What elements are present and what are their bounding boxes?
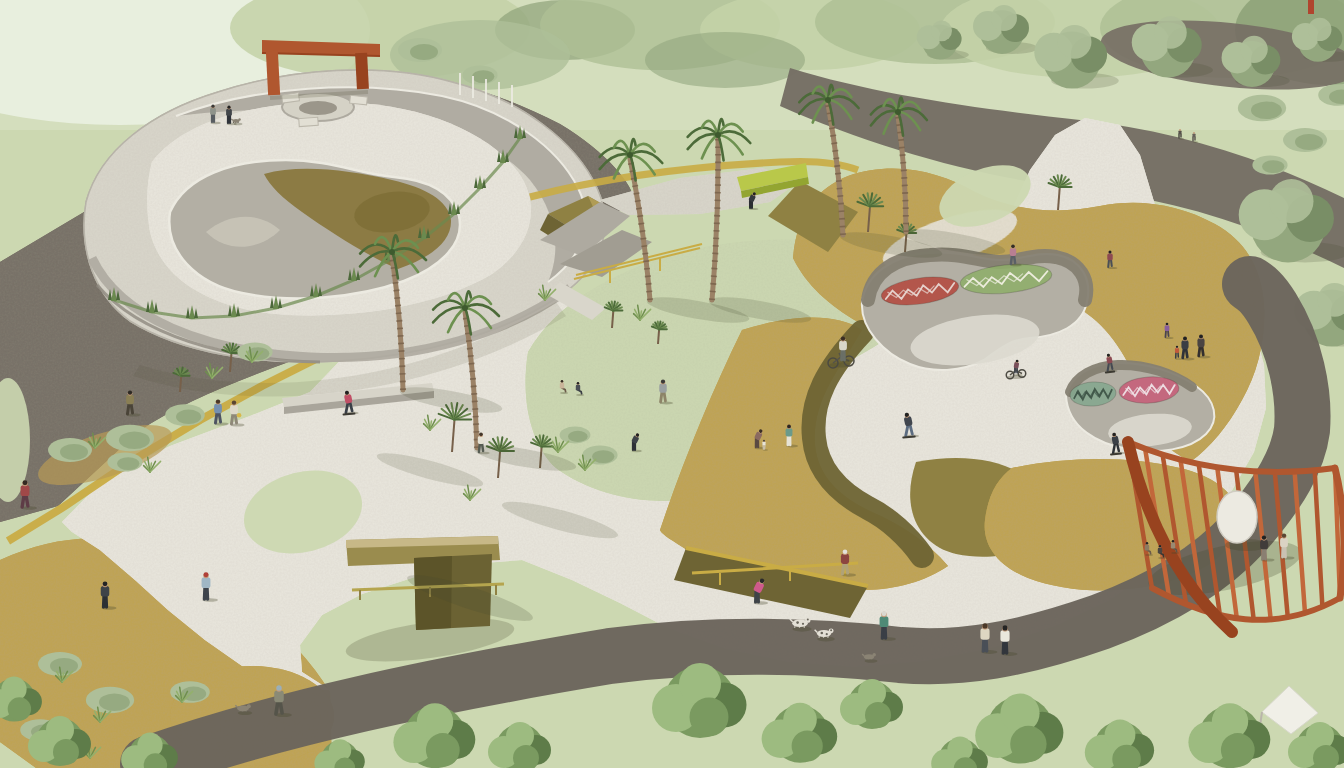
person-torso bbox=[576, 385, 580, 391]
person-shadow bbox=[1158, 557, 1166, 559]
tree-canopy bbox=[1058, 25, 1092, 59]
cordyline-trunk bbox=[612, 311, 613, 328]
person-shadow bbox=[1179, 138, 1184, 139]
person-hair bbox=[227, 106, 230, 109]
bike-shadow bbox=[829, 363, 853, 368]
person-torso bbox=[226, 109, 232, 116]
bush-shade bbox=[117, 457, 139, 470]
skateboard bbox=[344, 414, 355, 415]
person-hair bbox=[1108, 251, 1111, 254]
person-leg bbox=[1199, 346, 1200, 356]
person-hair bbox=[1172, 540, 1174, 542]
person-leg bbox=[479, 443, 480, 452]
palm-crown bbox=[389, 249, 395, 255]
dog-ear bbox=[830, 629, 832, 631]
dog-shadow bbox=[817, 637, 835, 642]
person-torso bbox=[560, 383, 564, 389]
person-torso bbox=[21, 485, 30, 496]
bush-shade bbox=[119, 431, 150, 449]
person-leg bbox=[1186, 348, 1187, 357]
person-leg bbox=[280, 701, 282, 713]
person-torso bbox=[1178, 130, 1181, 134]
portal-leg-right bbox=[355, 53, 369, 90]
person-torso bbox=[762, 441, 765, 445]
person-leg bbox=[231, 413, 233, 424]
person-leg bbox=[127, 403, 129, 414]
tree-canopy bbox=[991, 5, 1017, 31]
bush-tree bbox=[462, 65, 497, 84]
dog-head bbox=[247, 704, 251, 708]
person-torso bbox=[786, 428, 793, 436]
person-hair bbox=[211, 105, 214, 108]
person-cap bbox=[843, 549, 848, 554]
person-torso bbox=[1145, 545, 1149, 551]
palm-crown bbox=[627, 152, 633, 158]
palm-crown bbox=[895, 109, 901, 115]
person-leg bbox=[1165, 331, 1166, 337]
painting-root bbox=[0, 0, 1344, 768]
person-hair bbox=[479, 433, 483, 437]
person-head bbox=[1193, 132, 1195, 134]
person-leg bbox=[219, 412, 221, 422]
tree-canopy bbox=[1240, 36, 1267, 63]
person-hair bbox=[787, 425, 791, 429]
dog-shadow bbox=[238, 711, 252, 715]
person-torso bbox=[1260, 540, 1268, 550]
dog-spot bbox=[796, 621, 799, 624]
tree-canopy bbox=[865, 702, 891, 728]
palm-crown bbox=[825, 97, 831, 103]
person-leg bbox=[1014, 255, 1015, 263]
person-torso bbox=[880, 616, 889, 627]
person-hair bbox=[841, 336, 845, 340]
person-hair bbox=[1011, 245, 1015, 249]
bush-tree bbox=[1238, 95, 1286, 121]
person-shadow bbox=[1014, 374, 1022, 376]
person-torso bbox=[478, 436, 484, 444]
tree-canopy bbox=[1154, 16, 1187, 49]
skatepark-aerial-rendering: Skate park aerial concept rendering bbox=[0, 0, 1344, 768]
person-hair bbox=[577, 382, 579, 384]
person-hair bbox=[1159, 545, 1161, 547]
person-torso bbox=[839, 341, 847, 351]
person-leg bbox=[1111, 260, 1112, 266]
person-leg bbox=[885, 626, 886, 638]
skatepark-rendering-stage: Skate park aerial concept rendering bbox=[0, 0, 1344, 768]
treeline-blob bbox=[645, 32, 805, 88]
skateboard bbox=[1106, 372, 1114, 373]
person-torso bbox=[1010, 248, 1016, 256]
person-torso bbox=[202, 577, 211, 588]
person-hair bbox=[128, 390, 132, 394]
person-leg bbox=[1108, 363, 1109, 371]
person-cap bbox=[661, 379, 665, 383]
person-bag bbox=[237, 413, 242, 418]
dog-shadow bbox=[865, 659, 878, 663]
person-leg bbox=[276, 701, 278, 714]
bush-shade bbox=[568, 431, 588, 442]
dog-spot bbox=[821, 632, 824, 635]
tree-canopy bbox=[8, 697, 31, 720]
deck-seat-block bbox=[350, 95, 368, 105]
person-hair bbox=[1199, 334, 1203, 338]
cordyline-trunk bbox=[658, 330, 659, 344]
palm-crown bbox=[462, 305, 468, 311]
person-torso bbox=[1175, 348, 1179, 353]
portal-leg-left bbox=[266, 51, 280, 96]
person-leg bbox=[983, 639, 984, 651]
person-hair bbox=[561, 380, 563, 382]
deck-seat-block bbox=[299, 117, 319, 126]
person-hair bbox=[1262, 535, 1266, 539]
person-torso bbox=[210, 108, 216, 115]
bush-shade bbox=[50, 658, 78, 674]
person-hair bbox=[1146, 542, 1148, 544]
person-cap bbox=[882, 611, 887, 616]
person-hair bbox=[982, 623, 987, 628]
person-leg bbox=[1003, 641, 1004, 653]
skateboard bbox=[1111, 454, 1121, 455]
bush-shade bbox=[592, 450, 614, 463]
person-torso bbox=[101, 586, 110, 597]
skateboard bbox=[903, 437, 914, 438]
person-hair bbox=[763, 440, 765, 442]
person-torso bbox=[1192, 133, 1195, 137]
tree-canopy bbox=[1269, 179, 1313, 223]
person-leg bbox=[661, 392, 662, 402]
person-leg bbox=[664, 392, 665, 401]
tree-canopy bbox=[690, 698, 729, 737]
person-leg bbox=[986, 639, 987, 651]
person-shadow bbox=[1171, 552, 1179, 554]
person-hair bbox=[1176, 346, 1178, 348]
bush-shade bbox=[1262, 160, 1284, 173]
person-torso bbox=[230, 405, 238, 415]
dog-spot bbox=[802, 623, 804, 625]
person-torso bbox=[1181, 340, 1188, 349]
tree-canopy bbox=[1010, 726, 1046, 762]
person-cap bbox=[276, 685, 281, 690]
person-leg bbox=[1202, 346, 1203, 355]
person-torso bbox=[126, 395, 134, 405]
person-leg bbox=[22, 495, 24, 507]
cordyline-trunk bbox=[230, 354, 231, 372]
person-shadow bbox=[1175, 358, 1182, 360]
bush-shade bbox=[60, 444, 88, 460]
egg-sculpture bbox=[1217, 491, 1257, 543]
person-leg bbox=[207, 587, 208, 599]
person-leg bbox=[104, 596, 105, 608]
person-leg bbox=[204, 587, 205, 599]
person-torso bbox=[1197, 338, 1204, 347]
bush-shade bbox=[1251, 101, 1282, 119]
tree-canopy bbox=[1221, 733, 1255, 767]
person-cap bbox=[204, 572, 209, 577]
dog-head bbox=[872, 653, 876, 657]
person-leg bbox=[1108, 260, 1109, 267]
person-torso bbox=[1165, 325, 1170, 331]
tree-canopy bbox=[1308, 18, 1331, 41]
dog-tail bbox=[231, 119, 232, 120]
person-torso bbox=[274, 690, 284, 702]
person-head bbox=[1179, 129, 1181, 131]
person-hair bbox=[232, 400, 236, 404]
person-hair bbox=[23, 480, 28, 485]
person-hair bbox=[216, 399, 220, 403]
person-leg bbox=[1183, 348, 1184, 358]
person-shadow bbox=[576, 394, 584, 396]
person-torso bbox=[659, 384, 666, 393]
person-torso bbox=[1158, 548, 1162, 554]
person-torso bbox=[980, 628, 989, 639]
dog-spot bbox=[826, 633, 828, 635]
person-shadow bbox=[1145, 554, 1153, 556]
person-torso bbox=[1000, 630, 1009, 641]
person-leg bbox=[1168, 331, 1169, 336]
dog-ear bbox=[807, 619, 809, 621]
person-torso bbox=[841, 554, 849, 564]
person-torso bbox=[1280, 538, 1288, 548]
dog-head bbox=[238, 118, 240, 120]
person-torso bbox=[1171, 543, 1175, 549]
cordyline-trunk bbox=[180, 376, 181, 392]
person-hair bbox=[1282, 533, 1286, 537]
bush-tree bbox=[1252, 155, 1287, 174]
person-leg bbox=[26, 495, 28, 506]
person-leg bbox=[1006, 641, 1007, 653]
person-leg bbox=[882, 626, 883, 638]
person-leg bbox=[235, 413, 237, 423]
red-marker-topright bbox=[1308, 0, 1314, 14]
palm-crown bbox=[715, 132, 721, 138]
person-leg bbox=[106, 596, 107, 608]
person-leg bbox=[1011, 255, 1012, 264]
person-torso bbox=[1107, 254, 1112, 261]
person-torso bbox=[214, 404, 222, 414]
person-hair bbox=[1183, 336, 1187, 340]
person-leg bbox=[1111, 363, 1112, 369]
person-hair bbox=[1166, 323, 1169, 326]
tree-canopy bbox=[53, 739, 79, 765]
bush-tree bbox=[1283, 128, 1327, 152]
bush-shade bbox=[99, 693, 130, 711]
firepit-inner bbox=[299, 101, 337, 115]
bush-shade bbox=[176, 410, 201, 424]
bush-shade bbox=[1295, 134, 1323, 150]
bush-tree bbox=[398, 38, 442, 62]
person-hair bbox=[103, 581, 108, 586]
bush-shade bbox=[472, 70, 494, 83]
tree-canopy bbox=[792, 730, 823, 761]
tree-canopy bbox=[426, 733, 460, 767]
tree-canopy bbox=[931, 20, 952, 41]
person-leg bbox=[482, 443, 483, 451]
bush-shade bbox=[410, 44, 438, 60]
person-leg bbox=[842, 563, 844, 574]
person-shadow bbox=[560, 392, 568, 394]
person-leg bbox=[215, 412, 217, 423]
person-hair bbox=[1002, 625, 1007, 630]
person-leg bbox=[846, 563, 848, 573]
person-leg bbox=[131, 403, 133, 413]
person-shadow bbox=[1193, 141, 1198, 142]
